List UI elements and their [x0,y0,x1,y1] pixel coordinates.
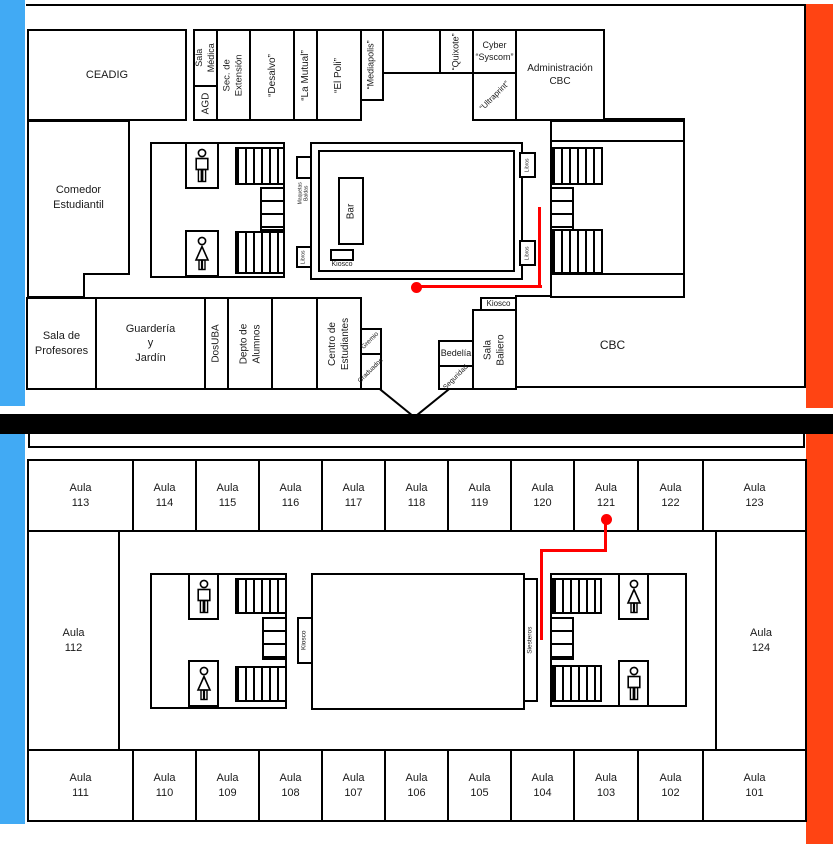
room-depto-de-alumnos: Depto de Alumnos [227,297,273,390]
room-aula-115: Aula 115 [195,459,260,532]
room-aula-113: Aula 113 [27,459,134,532]
room-aula-119: Aula 119 [447,459,512,532]
route-segment [538,207,541,288]
room-aula-109: Aula 109 [195,749,260,822]
stairs [235,666,287,702]
room-aula-105: Aula 105 [447,749,512,822]
libros-stand-right-bottom: Libros [519,240,536,266]
wall [804,4,806,388]
room-desalvo: “Desalvo” [249,29,295,121]
room-aula-123: Aula 123 [702,459,807,532]
wall [26,4,806,6]
room-aula-124: Aula 124 [715,530,807,751]
room-mediapolis: “Mediapolis” [360,29,384,101]
room-ultraprint: “Ultraprint” [472,72,517,121]
room-dosuba: DosUBA [204,297,229,390]
stairs [552,578,602,614]
room-aula-106: Aula 106 [384,749,449,822]
wall [28,434,30,448]
stairs [235,231,285,274]
route-segment [416,285,542,288]
room-aula-101: Aula 101 [702,749,807,822]
room-sala-baliero: Sala Baliero [472,309,517,390]
lockers [262,617,287,660]
room-quixote: “Quixote” [439,29,474,74]
room-comedor-annex [27,273,85,298]
room-aula-120: Aula 120 [510,459,575,532]
room-sec-de-extension: Sec. de Extensión [216,29,251,121]
womens-restroom [188,660,219,707]
room-centro-de-estudiantes: Centro de Estudiantes [316,297,362,390]
male-icon [623,666,645,702]
floor-divider-band [0,414,833,434]
room-graduados: Graduados [360,353,382,390]
female-icon [191,236,213,272]
libros-stand-right-top: Libros [519,152,536,178]
room-cyber-syscom: Cyber “Syscom” [472,29,517,74]
room-el-poli: “El Poli” [316,29,362,121]
route-segment [540,549,607,552]
room-unlabeled-row [271,297,318,390]
lockers [260,187,285,231]
siesteros-stand: Siesteros [523,578,538,702]
room-unlabeled-top [382,29,441,74]
room-aula-108: Aula 108 [258,749,323,822]
room-aula-107: Aula 107 [321,749,386,822]
route-dot-aula-121 [601,514,612,525]
womens-restroom [185,230,219,277]
room-guarderia-y-jardin: Guardería y Jardín [95,297,206,390]
female-icon [193,666,215,702]
cbc-area-label: CBC [575,333,650,357]
mens-restroom [188,573,219,620]
room-aula-122: Aula 122 [637,459,704,532]
mens-restroom [185,142,219,189]
room-aula-112: Aula 112 [27,530,120,751]
stairs [552,665,602,702]
room-gremio: Gremio [360,328,382,355]
orange-edge-bar-lower [806,434,833,844]
room-ceadig: CEADIG [27,29,187,121]
mens-restroom [618,660,649,707]
room-bar: Bar [338,177,364,245]
lockers [550,187,574,231]
room-aula-117: Aula 117 [321,459,386,532]
room-comedor-estudiantil: Comedor Estudiantil [27,120,130,275]
kiosco-stand-lower: Kiosco [297,617,313,664]
room-sala-de-profesores: Sala de Profesores [26,297,97,390]
building-floorplan-map: CEADIG Sala Médica AGD Sec. de Extensión… [0,0,833,844]
stairs [551,229,603,274]
libros-stand-left: Libros [296,246,312,268]
wall [803,434,805,448]
stairs [235,578,287,614]
kiosco-stand-label: Kiosco [318,259,366,271]
womens-restroom [618,573,649,620]
room-agd: AGD [193,85,218,121]
orange-edge-bar-upper [806,4,833,408]
room-sala-medica: Sala Médica [193,29,218,87]
female-icon [623,579,645,615]
lockers [550,617,574,660]
room-la-mutual: “La Mutual” [293,29,318,121]
room-aula-102: Aula 102 [637,749,704,822]
blue-edge-bar-lower [0,434,25,824]
male-icon [193,579,215,615]
room-aula-103: Aula 103 [573,749,639,822]
blue-edge-bar-upper [0,0,25,406]
room-administracion-cbc: Administración CBC [515,29,605,121]
wall [550,140,685,142]
room-bedelia: Bedelía [438,340,474,367]
route-dot-upper [411,282,422,293]
stairs [235,147,285,185]
route-segment [540,549,543,640]
room-aula-116: Aula 116 [258,459,323,532]
room-aula-104: Aula 104 [510,749,575,822]
room-aula-114: Aula 114 [132,459,197,532]
central-hall [311,573,525,710]
room-aula-111: Aula 111 [27,749,134,822]
room-seguridad: Seguridad [438,365,474,390]
wall [28,446,805,448]
room-aula-118: Aula 118 [384,459,449,532]
male-icon [191,148,213,184]
maquetas-stand-label: Maquetas Baldas [290,176,318,210]
stairs [551,147,603,185]
room-aula-110: Aula 110 [132,749,197,822]
